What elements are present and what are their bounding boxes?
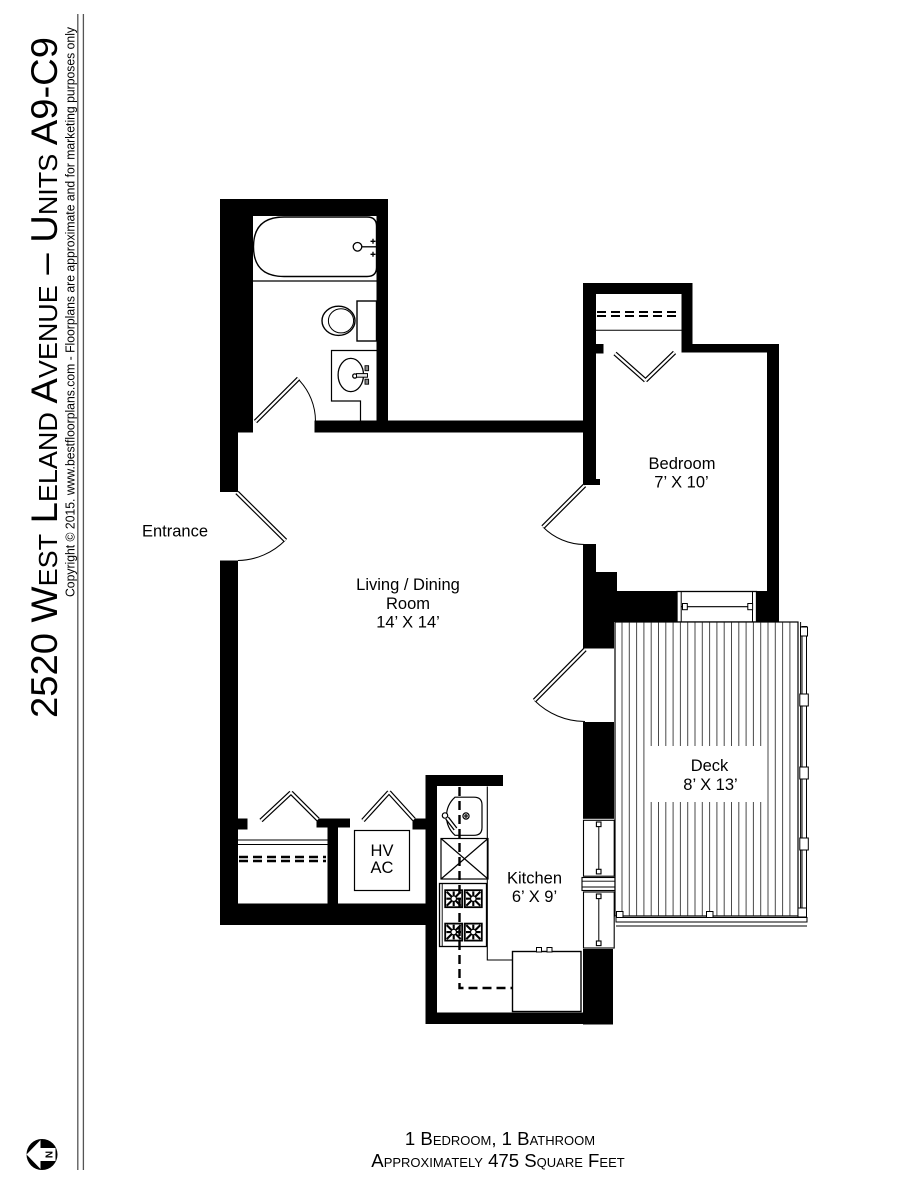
svg-text:8’ X 13’: 8’ X 13’	[683, 776, 737, 794]
svg-text:7’ X 10’: 7’ X 10’	[654, 474, 708, 492]
svg-text:Approximately 475 Square Feet: Approximately 475 Square Feet	[371, 1150, 624, 1171]
svg-text:AC: AC	[371, 859, 394, 877]
svg-text:Entrance: Entrance	[142, 523, 208, 541]
svg-text:Bedroom: Bedroom	[649, 455, 716, 473]
svg-text:Deck: Deck	[691, 757, 729, 775]
svg-text:6’ X 9’: 6’ X 9’	[512, 888, 557, 906]
svg-text:N: N	[45, 1151, 56, 1158]
svg-text:HV: HV	[371, 842, 394, 860]
svg-text:14’ X 14’: 14’ X 14’	[376, 614, 440, 632]
svg-text:Kitchen: Kitchen	[507, 870, 562, 888]
svg-text:1 Bedroom, 1 Bathroom: 1 Bedroom, 1 Bathroom	[405, 1128, 595, 1149]
svg-text:Room: Room	[386, 595, 430, 613]
svg-text:Copyright © 2015. www.bestflo: Copyright © 2015. www.bestfloorplans.com…	[64, 26, 78, 597]
svg-text:2520 West Leland Avenue – Unit: 2520 West Leland Avenue – Units A9-C9	[24, 37, 65, 718]
svg-text:Living / Dining: Living / Dining	[356, 576, 460, 594]
